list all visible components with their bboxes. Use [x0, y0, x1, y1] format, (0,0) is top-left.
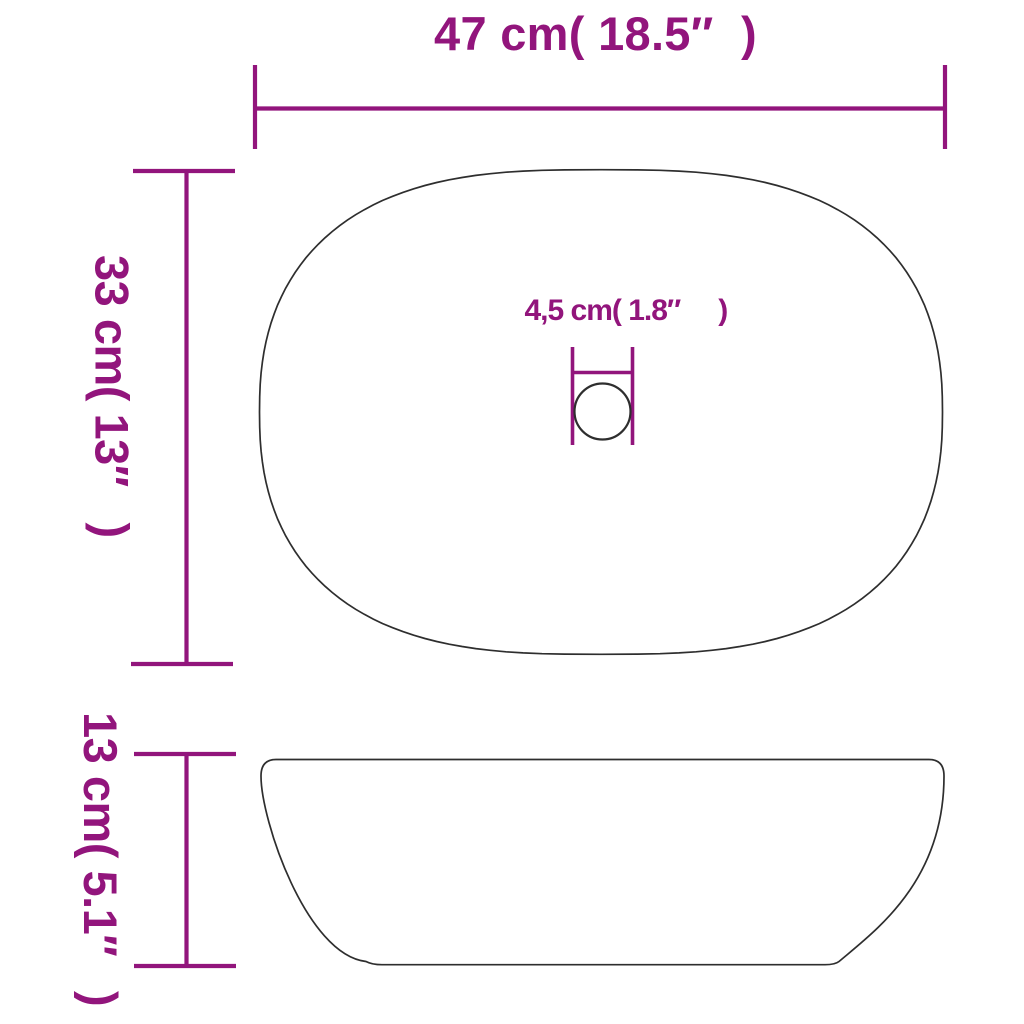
svg-text:): ) — [741, 7, 757, 60]
svg-text:): ) — [85, 523, 138, 539]
svg-text:33 cm( 13″: 33 cm( 13″ — [85, 255, 138, 487]
svg-text:): ) — [718, 294, 728, 327]
svg-text:): ) — [74, 991, 127, 1007]
svg-text:4,5 cm( 1.8″: 4,5 cm( 1.8″ — [525, 294, 681, 327]
svg-text:13 cm( 5.1″: 13 cm( 5.1″ — [74, 712, 127, 956]
svg-text:47 cm( 18.5″: 47 cm( 18.5″ — [434, 7, 714, 60]
